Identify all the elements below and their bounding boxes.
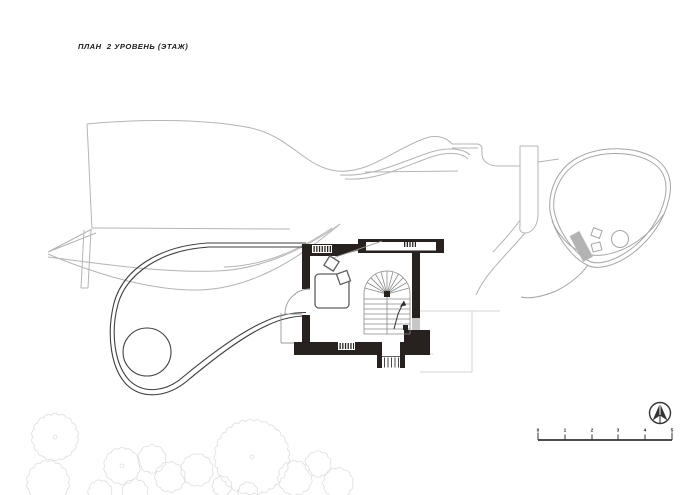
tree-symbol [32, 413, 79, 460]
scale-label: 3 [617, 428, 620, 434]
lower-level-outline [420, 311, 500, 372]
trees-group [27, 413, 353, 495]
scale-label: 4 [644, 428, 647, 434]
tree-trunk-dot [53, 435, 57, 439]
tree-symbol [214, 419, 289, 494]
stair-direction-arrow [394, 301, 406, 329]
chair [324, 256, 339, 271]
terrace-lounger [570, 231, 593, 262]
tree-symbol [181, 454, 213, 486]
main-room-walls [281, 239, 444, 368]
entry-ramp-curve [110, 243, 306, 395]
tree-symbol [88, 480, 112, 495]
floor-plan-page: ПЛАН 2 УРОВЕНЬ (ЭТАЖ) [0, 0, 700, 495]
tree-symbol [27, 461, 70, 495]
scale-label: 0 [537, 428, 540, 434]
scale-label: 1 [564, 428, 567, 434]
scale-bar: 0 1 2 3 4 5 [537, 428, 674, 441]
tree-trunk-dot [250, 455, 254, 459]
tree-symbol [138, 445, 166, 474]
furniture [315, 256, 351, 308]
ramp-circle [123, 328, 171, 376]
scale-label: 5 [671, 428, 674, 434]
staircase [364, 271, 410, 334]
floor-plan-svg: 0 1 2 3 4 5 [0, 0, 700, 495]
terrace-stool [591, 228, 602, 239]
tree-symbol [323, 468, 353, 495]
terrace-table-circle [612, 231, 629, 248]
stair-newel-post [384, 291, 390, 297]
door-swing-arc [285, 289, 310, 314]
tree-symbol [122, 479, 148, 495]
terrace-blob [521, 149, 670, 298]
tree-symbol [155, 462, 185, 493]
scale-label: 2 [591, 428, 594, 434]
tree-trunk-dot [120, 464, 124, 468]
window-bay [377, 342, 405, 368]
terrace-stool [591, 242, 602, 252]
north-arrow-icon [650, 403, 671, 424]
